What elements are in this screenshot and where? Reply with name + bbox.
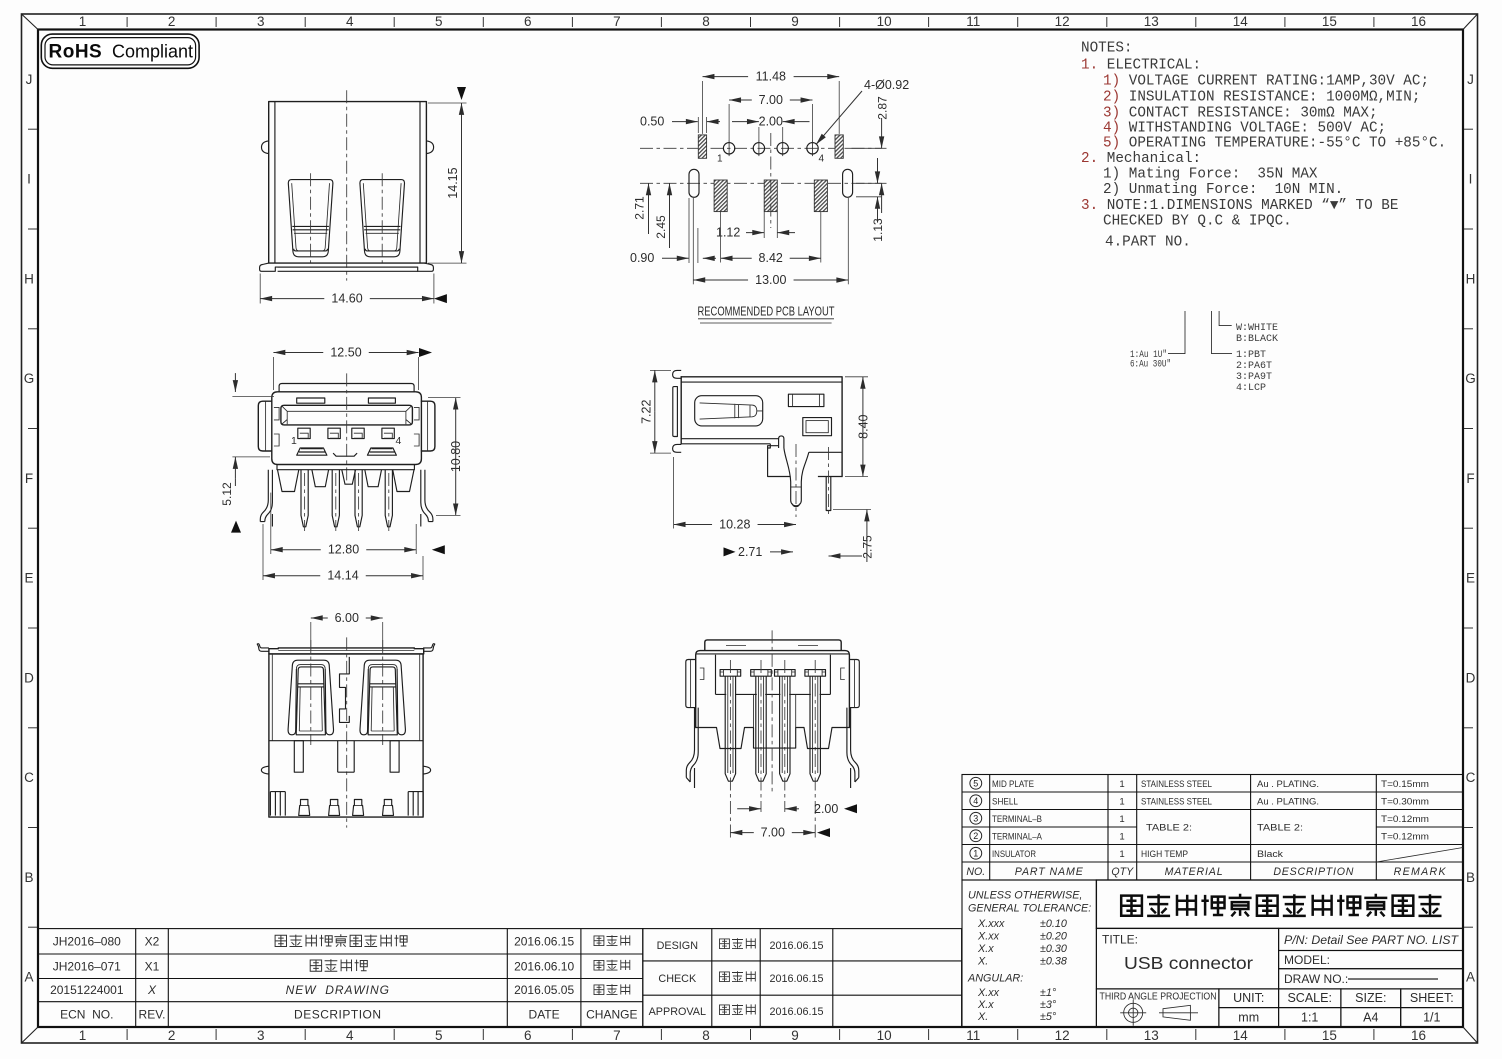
- svg-text:2.00: 2.00: [759, 114, 783, 128]
- svg-text:12.50: 12.50: [330, 345, 361, 359]
- svg-text:DESIGN: DESIGN: [657, 940, 698, 952]
- svg-text:E: E: [1466, 571, 1475, 586]
- svg-text:T=0.12mm: T=0.12mm: [1381, 814, 1429, 825]
- svg-text:6: 6: [524, 14, 532, 29]
- svg-text:NOTES:: NOTES:: [1081, 41, 1132, 57]
- svg-text:QTY: QTY: [1111, 866, 1134, 878]
- svg-text:5.12: 5.12: [220, 482, 234, 506]
- svg-text:15: 15: [1322, 1028, 1337, 1043]
- svg-text:MID PLATE: MID PLATE: [992, 779, 1034, 790]
- svg-text:4: 4: [346, 14, 354, 29]
- svg-text:6:Au 30U": 6:Au 30U": [1130, 359, 1171, 371]
- svg-text:4) WITHSTANDING VOLTAGE: 500V: 4) WITHSTANDING VOLTAGE: 500V AC;: [1103, 121, 1386, 137]
- svg-text:2.71: 2.71: [738, 545, 762, 559]
- svg-text:1: 1: [291, 435, 297, 447]
- svg-text:1: 1: [1119, 849, 1124, 860]
- svg-text:C: C: [1466, 770, 1476, 785]
- svg-text:DRAW NO.:: DRAW NO.:: [1284, 972, 1348, 986]
- svg-text:2: 2: [973, 831, 978, 841]
- svg-text:±0.10: ±0.10: [1040, 918, 1067, 930]
- svg-text:7: 7: [613, 14, 621, 29]
- svg-text:±0.30: ±0.30: [1040, 943, 1067, 955]
- svg-text:2: 2: [168, 1028, 176, 1043]
- svg-text:11.48: 11.48: [756, 69, 786, 83]
- svg-text:12: 12: [1055, 1028, 1070, 1043]
- svg-text:SCALE:: SCALE:: [1287, 991, 1331, 1005]
- svg-text:TERMINAL–A: TERMINAL–A: [992, 831, 1042, 842]
- svg-text:JH2016–080: JH2016–080: [53, 934, 121, 948]
- svg-text:9: 9: [791, 1028, 799, 1043]
- svg-text:MODEL:: MODEL:: [1284, 953, 1330, 967]
- svg-text:2) INSULATION RESISTANCE: 1000: 2) INSULATION RESISTANCE: 1000MΩ,MIN;: [1103, 90, 1420, 106]
- svg-text:Au . PLATING.: Au . PLATING.: [1257, 779, 1319, 790]
- svg-text:±0.20: ±0.20: [1040, 931, 1067, 943]
- svg-text:X.: X.: [977, 1011, 988, 1023]
- svg-text:1: 1: [1119, 814, 1124, 825]
- svg-text:8: 8: [702, 1028, 710, 1043]
- svg-text:CHECKED BY Q.C & IPQC.: CHECKED BY Q.C & IPQC.: [1103, 214, 1292, 230]
- svg-text:8.42: 8.42: [759, 251, 783, 265]
- svg-text:APPROVAL: APPROVAL: [649, 1006, 706, 1018]
- svg-text:TABLE 2:: TABLE 2:: [1146, 823, 1192, 834]
- svg-text:1: 1: [79, 1028, 87, 1043]
- svg-text:B: B: [24, 870, 33, 885]
- svg-text:2016.06.15: 2016.06.15: [769, 940, 823, 952]
- svg-text:T=0.15mm: T=0.15mm: [1381, 779, 1429, 790]
- svg-text:STAINLESS STEEL: STAINLESS STEEL: [1141, 796, 1213, 807]
- svg-text:6.00: 6.00: [335, 611, 359, 625]
- svg-text:3) CONTACT RESISTANCE: 30mΩ MA: 3) CONTACT RESISTANCE: 30mΩ MAX;: [1103, 106, 1378, 122]
- svg-text:Black: Black: [1257, 849, 1283, 860]
- svg-text:1.13: 1.13: [871, 218, 885, 242]
- svg-text:GENERAL TOLERANCE:: GENERAL TOLERANCE:: [968, 903, 1091, 915]
- svg-text:X.: X.: [977, 956, 988, 968]
- svg-text:2016.06.10: 2016.06.10: [514, 959, 574, 973]
- svg-text:11: 11: [966, 14, 980, 29]
- svg-text:3: 3: [257, 1028, 265, 1043]
- svg-text:10: 10: [877, 14, 892, 29]
- svg-text:G: G: [24, 371, 35, 386]
- svg-text:CHANGE: CHANGE: [586, 1007, 637, 1021]
- svg-text:THIRD ANGLE PROJECTION: THIRD ANGLE PROJECTION: [1100, 992, 1217, 1003]
- svg-text:5) OPERATING TEMPERATURE:-55°C: 5) OPERATING TEMPERATURE:-55°C TO +85°C.: [1103, 136, 1446, 152]
- svg-text:1/1: 1/1: [1423, 1011, 1440, 1025]
- svg-text:X: X: [147, 983, 157, 997]
- svg-text:11: 11: [966, 1028, 980, 1043]
- svg-text:16: 16: [1411, 1028, 1426, 1043]
- svg-text:NEW DRAWING: NEW DRAWING: [286, 983, 390, 997]
- svg-text:TITLE:: TITLE:: [1102, 933, 1138, 947]
- svg-text:I: I: [27, 172, 31, 187]
- svg-text:4:LCP: 4:LCP: [1236, 383, 1266, 394]
- svg-text:A: A: [24, 970, 33, 985]
- svg-text:HIGH TEMP: HIGH TEMP: [1141, 849, 1188, 860]
- svg-text:W:WHITE: W:WHITE: [1236, 323, 1278, 334]
- svg-text:1: 1: [1119, 779, 1124, 790]
- svg-text:F: F: [1466, 471, 1474, 486]
- svg-text:3:PA9T: 3:PA9T: [1236, 372, 1272, 383]
- svg-text:P/N: Detail See PART NO. LIST: P/N: Detail See PART NO. LIST: [1284, 933, 1460, 947]
- svg-text:X.x: X.x: [977, 999, 994, 1011]
- svg-text:15: 15: [1322, 14, 1337, 29]
- svg-text:RECOMMENDED PCB LAYOUT: RECOMMENDED PCB LAYOUT: [698, 304, 835, 319]
- svg-text:DESCRIPTION: DESCRIPTION: [294, 1007, 382, 1021]
- svg-text:6: 6: [524, 1028, 532, 1043]
- svg-text:2.87: 2.87: [876, 96, 890, 120]
- svg-text:1: 1: [79, 14, 87, 29]
- svg-text:STAINLESS STEEL: STAINLESS STEEL: [1141, 779, 1213, 790]
- svg-text:I: I: [1469, 172, 1473, 187]
- svg-text:16: 16: [1411, 14, 1426, 29]
- svg-text:0.90: 0.90: [630, 251, 654, 265]
- svg-text:2.00: 2.00: [814, 802, 838, 816]
- svg-text:mm: mm: [1238, 1011, 1259, 1025]
- svg-text:X.xx: X.xx: [977, 931, 1000, 943]
- svg-text:0.50: 0.50: [640, 114, 664, 128]
- svg-text:H: H: [24, 271, 34, 286]
- svg-text:SHELL: SHELL: [992, 796, 1019, 807]
- svg-text:D: D: [24, 670, 34, 685]
- svg-text:X.xx: X.xx: [977, 987, 1000, 999]
- svg-text:3: 3: [257, 14, 265, 29]
- svg-text:±3°: ±3°: [1040, 999, 1057, 1011]
- svg-text:1: 1: [1119, 796, 1124, 807]
- svg-text:H: H: [1466, 271, 1476, 286]
- svg-text:3: 3: [973, 814, 978, 824]
- svg-text:X1: X1: [145, 959, 160, 973]
- svg-text:E: E: [24, 571, 33, 586]
- svg-text:2: 2: [168, 14, 176, 29]
- svg-text:±1°: ±1°: [1040, 987, 1057, 999]
- svg-text:2.75: 2.75: [861, 535, 875, 559]
- svg-text:F: F: [25, 471, 33, 486]
- svg-text:4: 4: [396, 435, 402, 447]
- svg-text:14: 14: [1233, 14, 1249, 29]
- svg-text:X.xxx: X.xxx: [977, 918, 1005, 930]
- svg-text:2016.06.15: 2016.06.15: [769, 1006, 823, 1018]
- svg-text:DESCRIPTION: DESCRIPTION: [1273, 866, 1353, 878]
- svg-text:TABLE 2:: TABLE 2:: [1257, 823, 1303, 834]
- svg-text:14: 14: [1233, 1028, 1249, 1043]
- svg-text:12: 12: [1055, 14, 1070, 29]
- svg-text:B:BLACK: B:BLACK: [1236, 334, 1278, 345]
- svg-text:7.22: 7.22: [639, 400, 653, 424]
- svg-text:X2: X2: [145, 934, 160, 948]
- svg-text:1) Mating Force: 35N MAX: 1) Mating Force: 35N MAX: [1103, 167, 1318, 183]
- svg-text:12.80: 12.80: [328, 543, 359, 557]
- svg-text:13: 13: [1144, 1028, 1159, 1043]
- svg-text:TERMINAL–B: TERMINAL–B: [992, 814, 1042, 825]
- svg-text:2016.06.15: 2016.06.15: [769, 973, 823, 985]
- svg-text:1. ELECTRICAL:: 1. ELECTRICAL:: [1081, 58, 1201, 74]
- svg-text:9: 9: [791, 14, 799, 29]
- svg-text:14.15: 14.15: [446, 167, 460, 198]
- svg-text:X.x: X.x: [977, 943, 994, 955]
- svg-text:A: A: [1466, 970, 1475, 985]
- svg-text:1) VOLTAGE CURRENT RATING:1AMP: 1) VOLTAGE CURRENT RATING:1AMP,30V AC;: [1103, 74, 1429, 90]
- svg-text:J: J: [26, 72, 33, 87]
- svg-text:UNIT:: UNIT:: [1233, 991, 1264, 1005]
- svg-text:14.60: 14.60: [331, 291, 362, 305]
- svg-text:4.PART NO.: 4.PART NO.: [1105, 235, 1191, 251]
- svg-text:4: 4: [819, 154, 825, 165]
- svg-text:2016.06.15: 2016.06.15: [514, 934, 574, 948]
- svg-text:7: 7: [613, 1028, 621, 1043]
- svg-text:2:PA6T: 2:PA6T: [1236, 361, 1272, 372]
- svg-text:±0.38: ±0.38: [1040, 956, 1067, 968]
- svg-text:7.00: 7.00: [761, 825, 785, 839]
- svg-text:5: 5: [973, 779, 978, 789]
- svg-text:8.40: 8.40: [856, 414, 870, 438]
- svg-text:13: 13: [1144, 14, 1159, 29]
- svg-text:ANGULAR:: ANGULAR:: [967, 973, 1023, 985]
- svg-text:4: 4: [346, 1028, 354, 1043]
- svg-text:G: G: [1465, 371, 1476, 386]
- svg-text:14.14: 14.14: [327, 569, 358, 583]
- svg-text:UNLESS OTHERWISE,: UNLESS OTHERWISE,: [968, 890, 1082, 902]
- svg-text:1.12: 1.12: [716, 225, 740, 239]
- svg-text:2) Unmating Force: 10N MIN.: 2) Unmating Force: 10N MIN.: [1103, 182, 1343, 198]
- svg-text:3. NOTE:1.DIMENSIONS MARKED “▼: 3. NOTE:1.DIMENSIONS MARKED “▼” TO BE: [1081, 198, 1398, 214]
- svg-text:5: 5: [435, 1028, 443, 1043]
- svg-text:JH2016–071: JH2016–071: [53, 959, 121, 973]
- svg-text:T=0.30mm: T=0.30mm: [1381, 796, 1429, 807]
- svg-text:MATERIAL: MATERIAL: [1165, 866, 1223, 878]
- svg-text:SIZE:: SIZE:: [1355, 991, 1386, 1005]
- svg-text:4: 4: [973, 796, 978, 806]
- svg-text:1:PBT: 1:PBT: [1236, 350, 1266, 361]
- svg-text:1: 1: [717, 154, 723, 165]
- svg-text:NO.: NO.: [966, 866, 985, 878]
- svg-text:1:1: 1:1: [1301, 1011, 1318, 1025]
- svg-text:T=0.12mm: T=0.12mm: [1381, 831, 1429, 842]
- svg-text:2.71: 2.71: [633, 196, 647, 220]
- svg-text:10.80: 10.80: [449, 441, 463, 472]
- svg-text:8: 8: [702, 14, 710, 29]
- svg-text:10.28: 10.28: [719, 517, 750, 531]
- svg-text:Compliant: Compliant: [112, 42, 193, 62]
- svg-text:D: D: [1466, 670, 1476, 685]
- svg-text:Au . PLATING.: Au . PLATING.: [1257, 796, 1319, 807]
- svg-text:7.00: 7.00: [759, 93, 783, 107]
- svg-text:DATE: DATE: [529, 1007, 560, 1021]
- svg-text:J: J: [1467, 72, 1474, 87]
- svg-text:C: C: [24, 770, 34, 785]
- svg-text:±5°: ±5°: [1040, 1011, 1057, 1023]
- svg-text:1: 1: [1119, 831, 1124, 842]
- svg-text:20151224001: 20151224001: [50, 983, 124, 997]
- svg-text:CHECK: CHECK: [658, 973, 697, 985]
- svg-text:2016.05.05: 2016.05.05: [514, 983, 574, 997]
- svg-text:10: 10: [877, 1028, 892, 1043]
- svg-text:A4: A4: [1363, 1011, 1378, 1025]
- svg-text:INSULATOR: INSULATOR: [992, 849, 1036, 860]
- svg-text:REV.: REV.: [139, 1007, 166, 1021]
- svg-text:1: 1: [973, 849, 978, 859]
- svg-text:USB connector: USB connector: [1124, 953, 1253, 973]
- svg-text:5: 5: [435, 14, 443, 29]
- svg-text:B: B: [1466, 870, 1475, 885]
- svg-text:SHEET:: SHEET:: [1410, 991, 1454, 1005]
- svg-text:ECN NO.: ECN NO.: [60, 1007, 113, 1021]
- svg-text:2.45: 2.45: [654, 215, 668, 239]
- svg-text:PART NAME: PART NAME: [1015, 866, 1084, 878]
- svg-text:2. Mechanical:: 2. Mechanical:: [1081, 151, 1201, 167]
- svg-text:RoHS: RoHS: [49, 42, 103, 63]
- svg-text:13.00: 13.00: [755, 273, 786, 287]
- svg-text:4-Ø0.92: 4-Ø0.92: [864, 78, 909, 92]
